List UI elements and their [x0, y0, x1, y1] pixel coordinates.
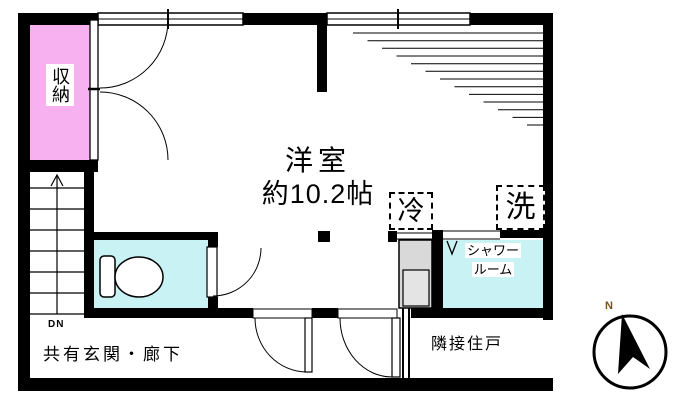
- shower-label-line2: ルーム: [472, 262, 515, 277]
- shower-label-line1: シャワー: [465, 243, 521, 258]
- corridor-door-2-arc: [340, 318, 392, 377]
- room-size-label: 約10.2帖: [218, 172, 418, 211]
- corridor-door-2-leaf: [392, 318, 400, 377]
- wall-shower-left: [432, 230, 443, 318]
- sloped-ceiling-hatch: [353, 33, 543, 125]
- shower-room-label: シャワー ルーム: [443, 241, 543, 279]
- stairs: [28, 175, 84, 314]
- wall-top-a: [18, 13, 98, 25]
- wall-toilet-top: [84, 232, 218, 240]
- wall-right: [543, 13, 553, 320]
- toilet-bowl: [115, 257, 163, 297]
- wall-corridor-b: [312, 308, 338, 318]
- laundry-space-label: 洗: [506, 193, 536, 223]
- wall-bottom: [18, 378, 553, 391]
- corridor-partition: [403, 308, 409, 378]
- wall-left: [18, 13, 30, 390]
- corridor-label: 共有玄関・廊下: [43, 340, 183, 365]
- fridge-space-label: 冷: [398, 198, 425, 225]
- corridor-door-1: [253, 309, 312, 372]
- corridor-door-1-leaf: [305, 318, 312, 372]
- corridor-door-1-opening: [253, 309, 312, 318]
- fridge-fixture-inner: [403, 270, 429, 306]
- pillar-room-center: [318, 231, 330, 242]
- stairs-down-label: DN: [48, 319, 64, 330]
- wall-shower-top: [500, 230, 543, 238]
- closet-door-arc-bottom: [100, 92, 168, 160]
- compass: [594, 314, 666, 388]
- pillar-fridge-nook: [388, 231, 397, 242]
- fridge-space-box: 冷: [389, 192, 433, 230]
- fridge-nook-opening: [397, 233, 432, 239]
- corridor-door-2: [338, 309, 400, 377]
- corridor-door-2-opening: [338, 309, 397, 318]
- adjacent-unit-label: 隣接住戸: [431, 330, 503, 354]
- storage-label: 収納: [46, 64, 74, 106]
- closet-doors: [88, 20, 168, 160]
- laundry-space-box: 洗: [496, 185, 545, 230]
- compass-north-label: N: [605, 300, 613, 312]
- toilet-door: [207, 247, 261, 297]
- wall-corridor-a: [218, 308, 253, 318]
- closet-door-arc-top: [100, 20, 168, 88]
- toilet-tank: [100, 256, 115, 297]
- corridor-door-1-arc: [255, 318, 307, 372]
- floor-plan: 収納 洋室 約10.2帖 冷 洗 シャワー ルーム DN 共有玄関・廊下 隣接住…: [0, 0, 675, 408]
- wall-top-stub: [317, 13, 327, 92]
- wall-toilet-bottom: [84, 308, 218, 318]
- toilet-door-leaf: [207, 247, 217, 297]
- wall-top-b: [243, 13, 327, 25]
- toilet-fixture: [100, 256, 163, 297]
- wall-toilet-right-upper: [208, 232, 218, 247]
- toilet-door-arc: [213, 248, 261, 296]
- wall-toilet-right-lower: [208, 297, 218, 318]
- wall-top-c: [470, 13, 553, 25]
